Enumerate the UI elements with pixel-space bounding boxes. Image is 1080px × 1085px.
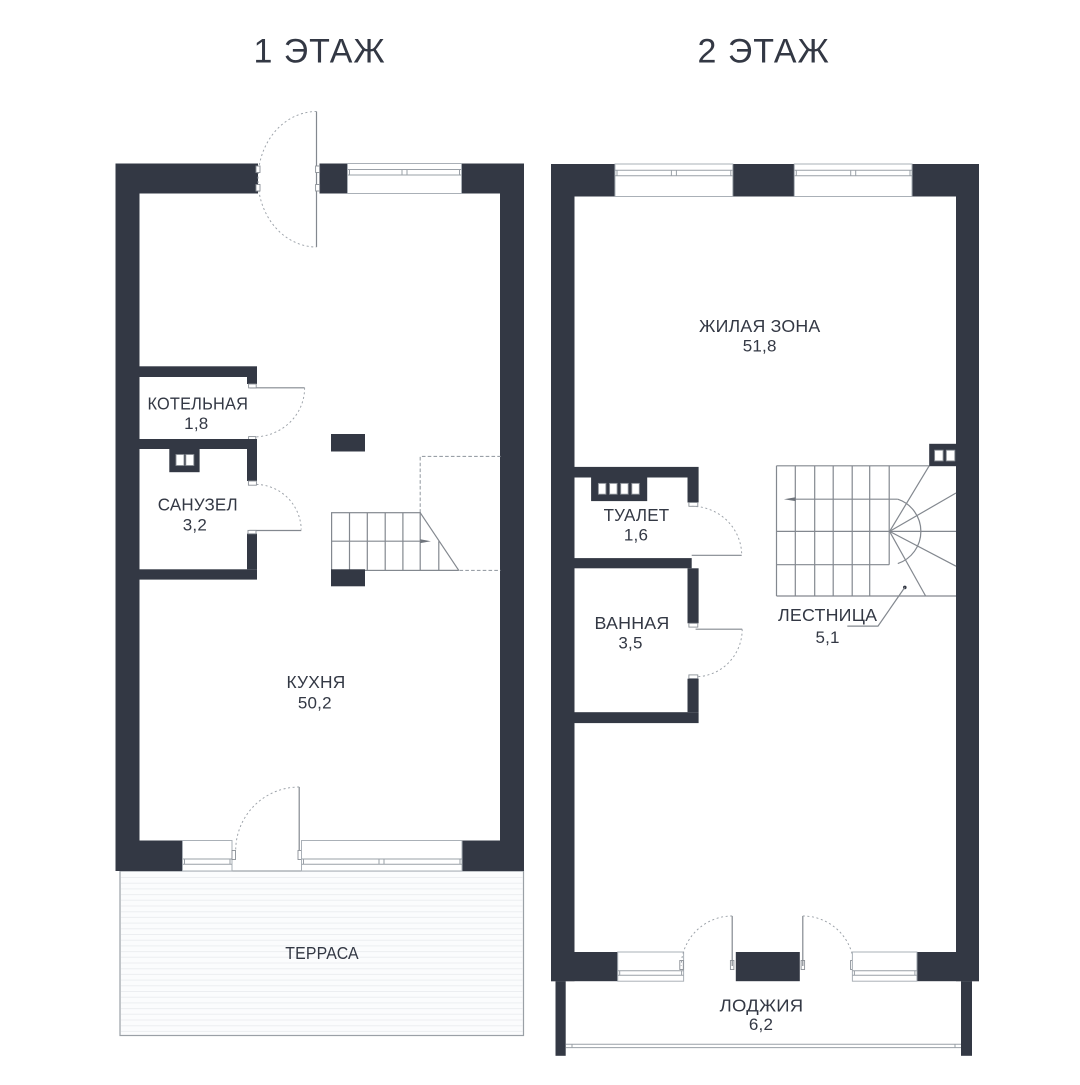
svg-text:51,8: 51,8 bbox=[743, 336, 777, 355]
svg-text:ЖИЛАЯ ЗОНА: ЖИЛАЯ ЗОНА bbox=[699, 316, 821, 336]
svg-text:6,2: 6,2 bbox=[749, 1015, 773, 1034]
svg-text:50,2: 50,2 bbox=[298, 694, 332, 713]
svg-text:3,2: 3,2 bbox=[183, 516, 207, 535]
svg-text:ТУАЛЕТ: ТУАЛЕТ bbox=[604, 505, 670, 525]
svg-text:1,8: 1,8 bbox=[184, 414, 208, 433]
svg-text:ЛОДЖИЯ: ЛОДЖИЯ bbox=[720, 996, 804, 1016]
svg-text:ЛЕСТНИЦА: ЛЕСТНИЦА bbox=[778, 605, 877, 625]
svg-text:ТЕРРАСА: ТЕРРАСА bbox=[285, 943, 359, 963]
svg-text:ВАННАЯ: ВАННАЯ bbox=[595, 613, 670, 633]
svg-text:2 ЭТАЖ: 2 ЭТАЖ bbox=[698, 33, 830, 71]
svg-text:1,6: 1,6 bbox=[624, 526, 648, 545]
svg-text:5,1: 5,1 bbox=[815, 628, 839, 647]
svg-text:1 ЭТАЖ: 1 ЭТАЖ bbox=[253, 33, 385, 71]
svg-text:САНУЗЕЛ: САНУЗЕЛ bbox=[158, 495, 238, 515]
svg-text:КОТЕЛЬНАЯ: КОТЕЛЬНАЯ bbox=[147, 394, 248, 414]
svg-text:КУХНЯ: КУХНЯ bbox=[287, 672, 346, 692]
svg-text:3,5: 3,5 bbox=[618, 633, 642, 652]
